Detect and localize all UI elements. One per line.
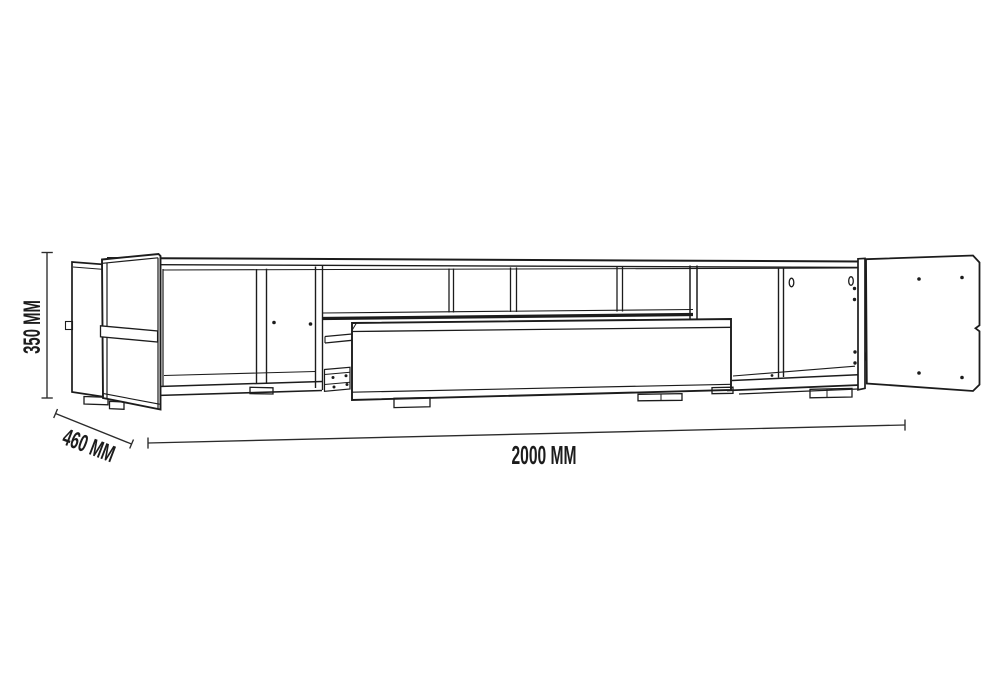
screw-hole [960, 276, 964, 280]
dimension-width-label: 2000 MM [511, 441, 576, 470]
left-door-open [101, 254, 161, 410]
screw-hole [853, 361, 856, 364]
dimension-depth-label: 460 MM [59, 424, 119, 468]
right-door-open [866, 256, 980, 392]
drawer-slides [325, 334, 353, 391]
top-panel [107, 258, 861, 270]
cable-hole [849, 277, 854, 286]
screw-hole [853, 350, 856, 353]
technical-drawing-page: 350 MM 460 MM 2000 MM [0, 0, 1000, 700]
screw-hole [917, 371, 921, 375]
screw-hole [960, 376, 964, 380]
left-end-panel [66, 262, 106, 397]
dimension-height-label: 350 MM [20, 300, 46, 354]
dimension-width: 2000 MM [148, 420, 905, 471]
left-compartment [157, 269, 323, 396]
right-end-panel [858, 258, 865, 389]
screw-hole [917, 277, 921, 281]
shelf-pin-hole [309, 322, 313, 326]
cable-hole [789, 278, 794, 287]
pin-hole [771, 374, 774, 377]
dimension-height: 350 MM [20, 253, 53, 399]
tv-stand-drawing: 350 MM 460 MM 2000 MM [0, 0, 1000, 700]
foot [638, 394, 682, 401]
dimension-depth: 460 MM [54, 409, 134, 468]
right-compartment [727, 268, 860, 394]
drawer-open [352, 319, 731, 400]
screw-hole [853, 287, 856, 290]
shelf-pin-hole [272, 321, 276, 325]
screw-hole [853, 298, 856, 301]
